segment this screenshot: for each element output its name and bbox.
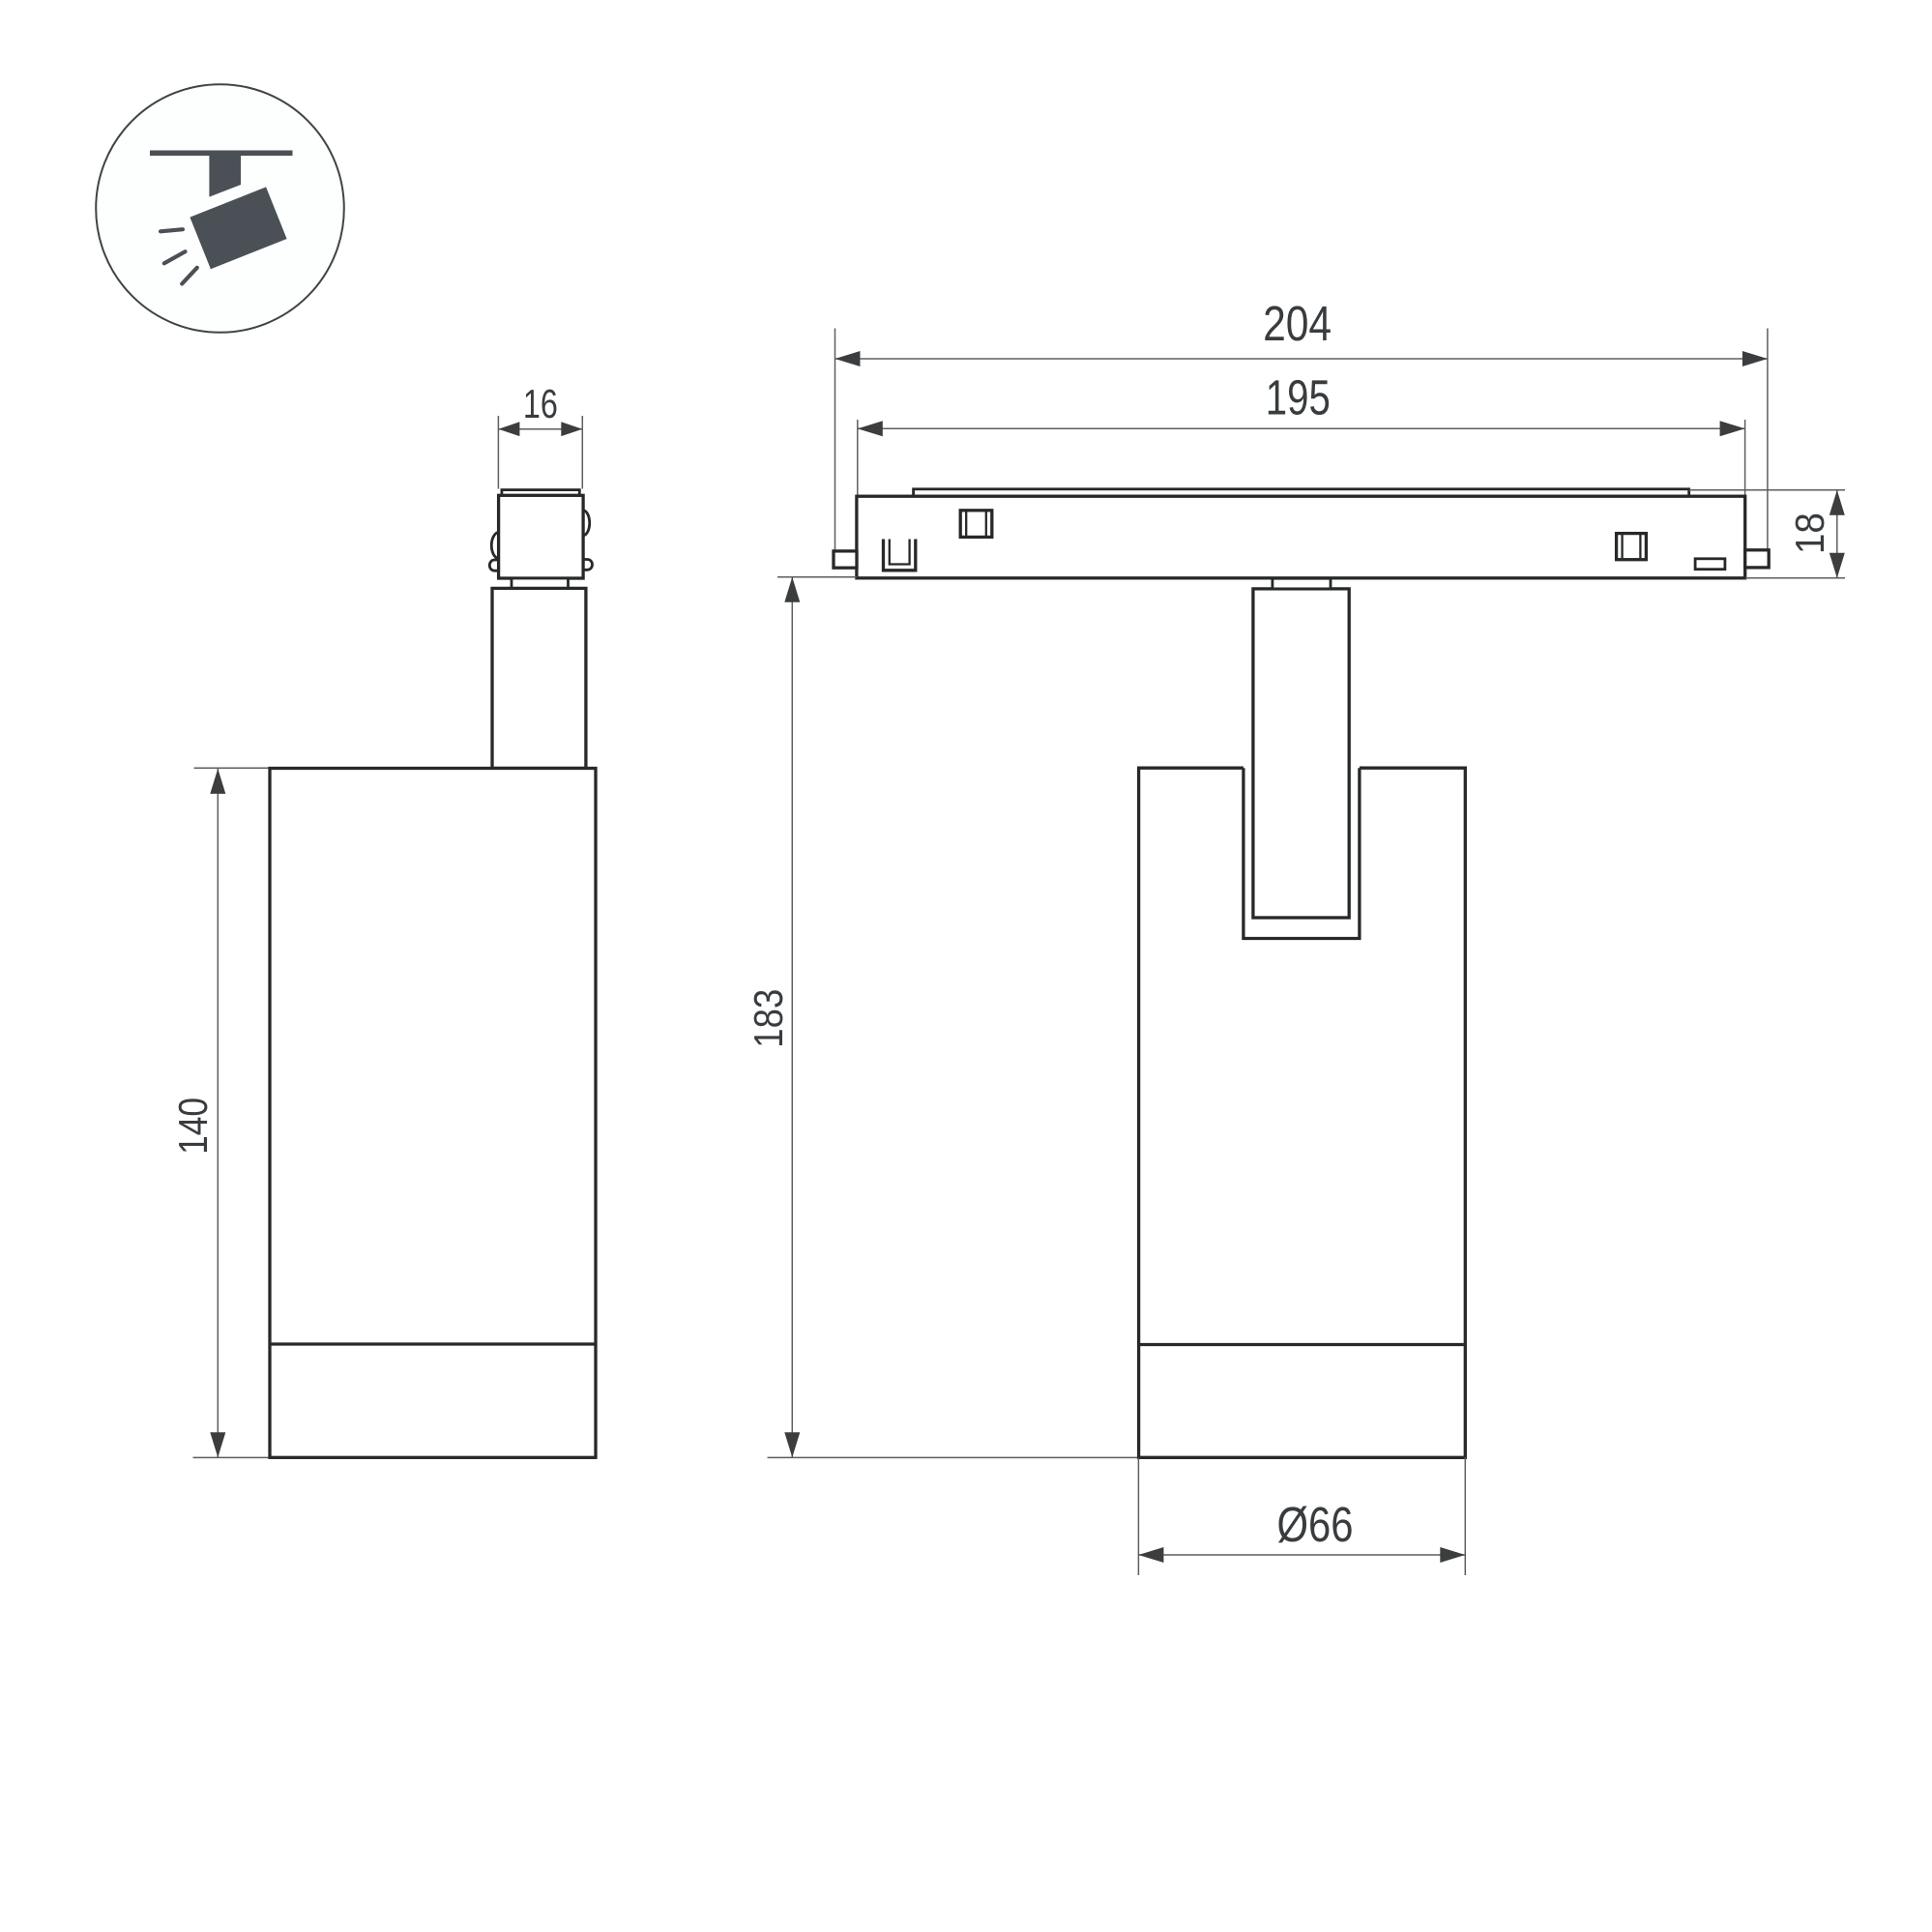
svg-text:204: 204 [1263, 296, 1332, 351]
svg-text:195: 195 [1266, 369, 1331, 424]
svg-text:16: 16 [523, 381, 558, 426]
svg-text:Ø66: Ø66 [1277, 1497, 1354, 1552]
svg-text:140: 140 [170, 1098, 216, 1155]
svg-text:18: 18 [1787, 512, 1832, 554]
svg-text:183: 183 [746, 989, 791, 1048]
